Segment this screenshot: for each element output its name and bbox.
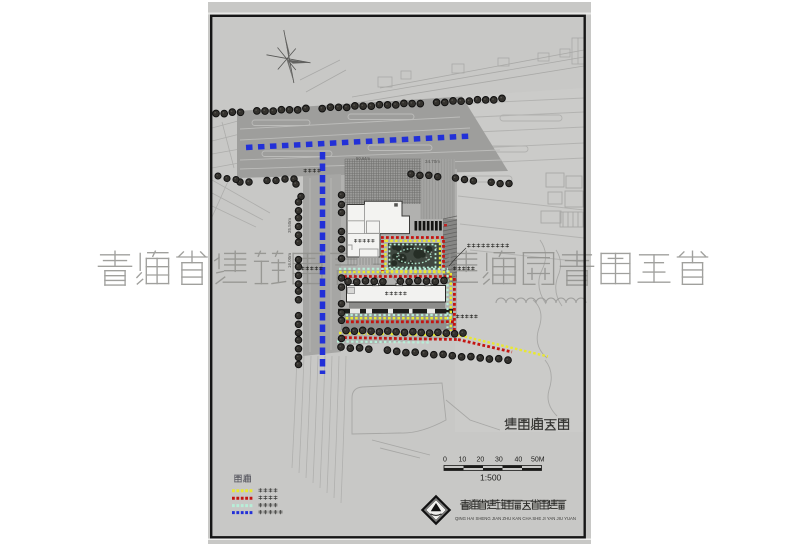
svg-text:0: 0 [443,457,447,464]
svg-text:40: 40 [515,457,523,464]
svg-text:1:500: 1:500 [480,473,502,483]
svg-text:50M: 50M [531,457,545,464]
svg-text:34.70m: 34.70m [425,159,440,164]
svg-text:30: 30 [495,457,503,464]
svg-text:35.50m: 35.50m [287,218,292,233]
svg-text:16.00m: 16.00m [287,253,292,268]
svg-text:50.64m: 50.64m [356,156,370,161]
svg-text:20: 20 [477,457,485,464]
svg-text:10: 10 [459,457,467,464]
svg-text:QING HAI SHENG JIAN ZHU KAN CH: QING HAI SHENG JIAN ZHU KAN CHA SHE JI Y… [455,516,576,521]
